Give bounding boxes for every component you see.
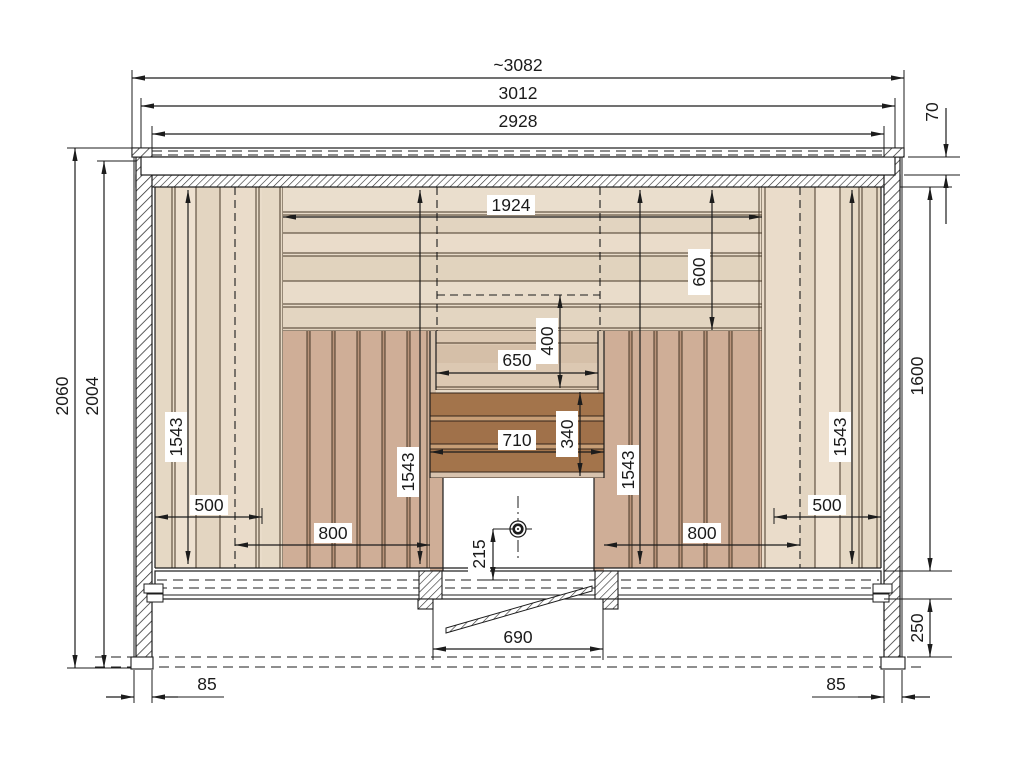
dim-label-drain-center-height: 215 (469, 539, 489, 568)
technical-drawing-canvas: ~3082 3012 2928 70 2060 2004 1600 (0, 0, 1024, 759)
dim-wall-thickness-right: 85 (812, 670, 930, 703)
dim-label-shell-width: 2928 (499, 111, 538, 131)
dim-label-right-inner-height: 1600 (907, 356, 927, 395)
dim-label-panel-height-center-right: 1543 (618, 451, 638, 490)
right-wall-column (884, 157, 902, 658)
dim-label-panel-height-right: 1543 (830, 418, 850, 457)
dim-label-roof-plank: 70 (922, 102, 942, 122)
dim-label-total-height: 2060 (52, 376, 72, 415)
roof-top-plate (132, 148, 904, 175)
dim-label-seat-width-left: 800 (318, 523, 347, 543)
dim-label-niche-width: 650 (502, 350, 531, 370)
dim-roof-plank-thickness: 70 (904, 102, 960, 224)
sauna-section-drawing: ~3082 3012 2928 70 2060 2004 1600 (0, 0, 1024, 759)
dim-label-base-height: 250 (907, 613, 927, 642)
dim-shell-width: 2928 (152, 111, 884, 150)
dim-label-upper-panel-height: 600 (689, 257, 709, 286)
dim-label-inner-height: 2004 (82, 376, 102, 415)
dim-label-frame-width: 3012 (499, 83, 538, 103)
bench-frame-band (155, 568, 881, 599)
dim-label-guard-width: 710 (502, 430, 531, 450)
dim-label-wall-thickness-left: 85 (197, 674, 216, 694)
dim-label-seat-width-right: 800 (687, 523, 716, 543)
dim-label-door-opening-width: 690 (503, 627, 532, 647)
dim-inner-height: 2004 (82, 161, 136, 668)
dim-wall-thickness-left: 85 (106, 670, 224, 703)
dim-label-overall-width: ~3082 (493, 55, 542, 75)
dim-label-back-panel-width: 1924 (492, 195, 531, 215)
dim-label-wall-thickness-right: 85 (826, 674, 845, 694)
dim-label-seat-depth-left: 500 (194, 495, 223, 515)
dim-label-niche-top-offset: 400 (537, 326, 557, 355)
ceiling-panel-strip (136, 175, 900, 187)
dim-label-panel-height-center-left: 1543 (398, 453, 418, 492)
floor-lines (95, 657, 925, 667)
left-wall-column (134, 157, 152, 658)
dim-label-guard-height: 340 (557, 419, 577, 448)
dim-label-panel-height-left: 1543 (166, 418, 186, 457)
dim-label-seat-depth-right: 500 (812, 495, 841, 515)
